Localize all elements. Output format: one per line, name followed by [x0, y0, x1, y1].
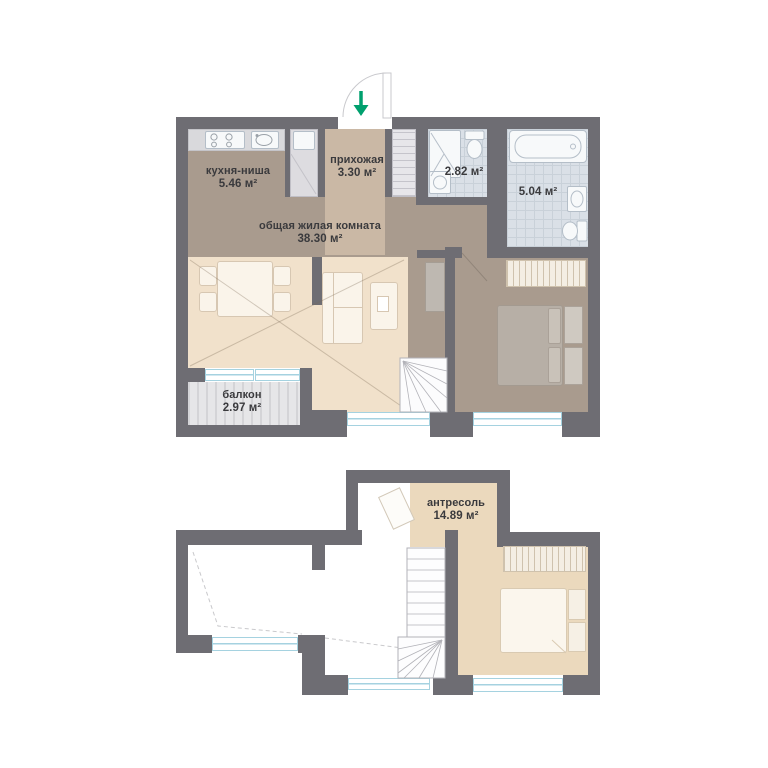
nightstand	[568, 589, 586, 620]
room-label-bathroom-small: 2.82 м²	[424, 166, 504, 179]
chair	[199, 292, 217, 312]
entrance-door-leaf	[383, 73, 391, 118]
room-area: 38.30 м²	[230, 233, 410, 246]
wall-right	[588, 117, 600, 437]
nightstand	[568, 622, 586, 652]
wall-bump-top	[346, 470, 510, 483]
room-name: кухня-ниша	[178, 165, 298, 178]
entrance-door-arc	[343, 73, 387, 117]
wardrobe	[503, 546, 586, 572]
void-dashed-lines	[193, 552, 402, 648]
wall2-void-stub	[312, 530, 325, 570]
chair	[273, 292, 291, 312]
wall-living-bedroom	[445, 258, 455, 412]
stove-icon	[205, 131, 245, 149]
living-room-window	[347, 412, 430, 426]
cabinet-fixture	[293, 131, 315, 150]
room-label-hallway: прихожая 3.30 м²	[315, 154, 399, 180]
room-area: 14.89 м²	[394, 510, 518, 523]
wardrobe	[506, 260, 586, 287]
room-name: общая жилая комната	[230, 220, 410, 233]
room-name: балкон	[192, 389, 292, 402]
dining-table	[217, 261, 273, 317]
wall2-bottom-block-left	[325, 675, 348, 695]
room-label-mezzanine: антресоль 14.89 м²	[394, 497, 518, 523]
room-label-balcony: балкон 2.97 м²	[192, 389, 292, 415]
wall-balcony-window-end	[188, 368, 205, 382]
wall2-bottom-left-a	[176, 635, 212, 653]
nightstand	[564, 347, 583, 385]
room-area: 2.82 м²	[424, 166, 504, 179]
bed	[500, 588, 567, 653]
wall-tee-stub	[417, 250, 445, 258]
dining-area-floor-column	[312, 368, 408, 412]
bed-pillow	[548, 308, 561, 344]
sofa-back	[323, 273, 334, 343]
chair	[199, 266, 217, 286]
wall-top-right	[392, 117, 600, 129]
balcony-window-divider	[253, 369, 256, 381]
wall2-top-right	[510, 532, 600, 547]
kitchen-sink-icon	[251, 131, 279, 149]
room-label-bathroom-large: 5.04 м²	[498, 186, 578, 199]
room-label-living: общая жилая комната 38.30 м²	[230, 220, 410, 246]
bed-pillow	[548, 347, 561, 383]
wall-living-window-left	[310, 410, 347, 437]
entrance-arrow-icon	[354, 91, 369, 116]
void-window	[212, 637, 298, 651]
mezzanine-bedroom-window	[473, 678, 563, 692]
floorplan-image: кухня-ниша 5.46 м² прихожая 3.30 м² 2.82…	[0, 0, 768, 768]
tv-console	[425, 262, 445, 312]
wall-bottom-mid	[430, 412, 473, 437]
wall2-step	[302, 635, 325, 695]
bathtub-icon	[509, 130, 587, 163]
wall-bottom-right	[562, 412, 600, 437]
sofa-cushion-divider	[334, 307, 362, 308]
room-area: 5.04 м²	[498, 186, 578, 199]
room-name: прихожая	[315, 154, 399, 167]
nightstand	[564, 306, 583, 344]
stairs-lower	[398, 548, 445, 678]
wall-top-left	[176, 117, 338, 129]
bedroom-window	[473, 412, 562, 426]
wall-bedroom-top-right	[489, 247, 600, 258]
book-icon	[377, 296, 389, 312]
chair	[273, 266, 291, 286]
room-area: 5.46 м²	[178, 178, 298, 191]
room-area: 3.30 м²	[315, 167, 399, 180]
bedroom-doorway-floor	[462, 247, 489, 258]
wall-dining-stub	[312, 257, 322, 305]
stairwell-window	[348, 678, 430, 690]
wall2-stairs-right	[445, 530, 458, 680]
wall-bedroom-top-left	[445, 247, 462, 258]
wall2-top-left	[176, 530, 362, 545]
wall-bathroom-small-bottom	[416, 197, 487, 205]
room-area: 2.97 м²	[192, 402, 292, 415]
room-label-kitchen: кухня-ниша 5.46 м²	[178, 165, 298, 191]
wall2-bottom-block-mid	[433, 675, 473, 695]
wall2-right	[588, 532, 600, 695]
room-name: антресоль	[394, 497, 518, 510]
